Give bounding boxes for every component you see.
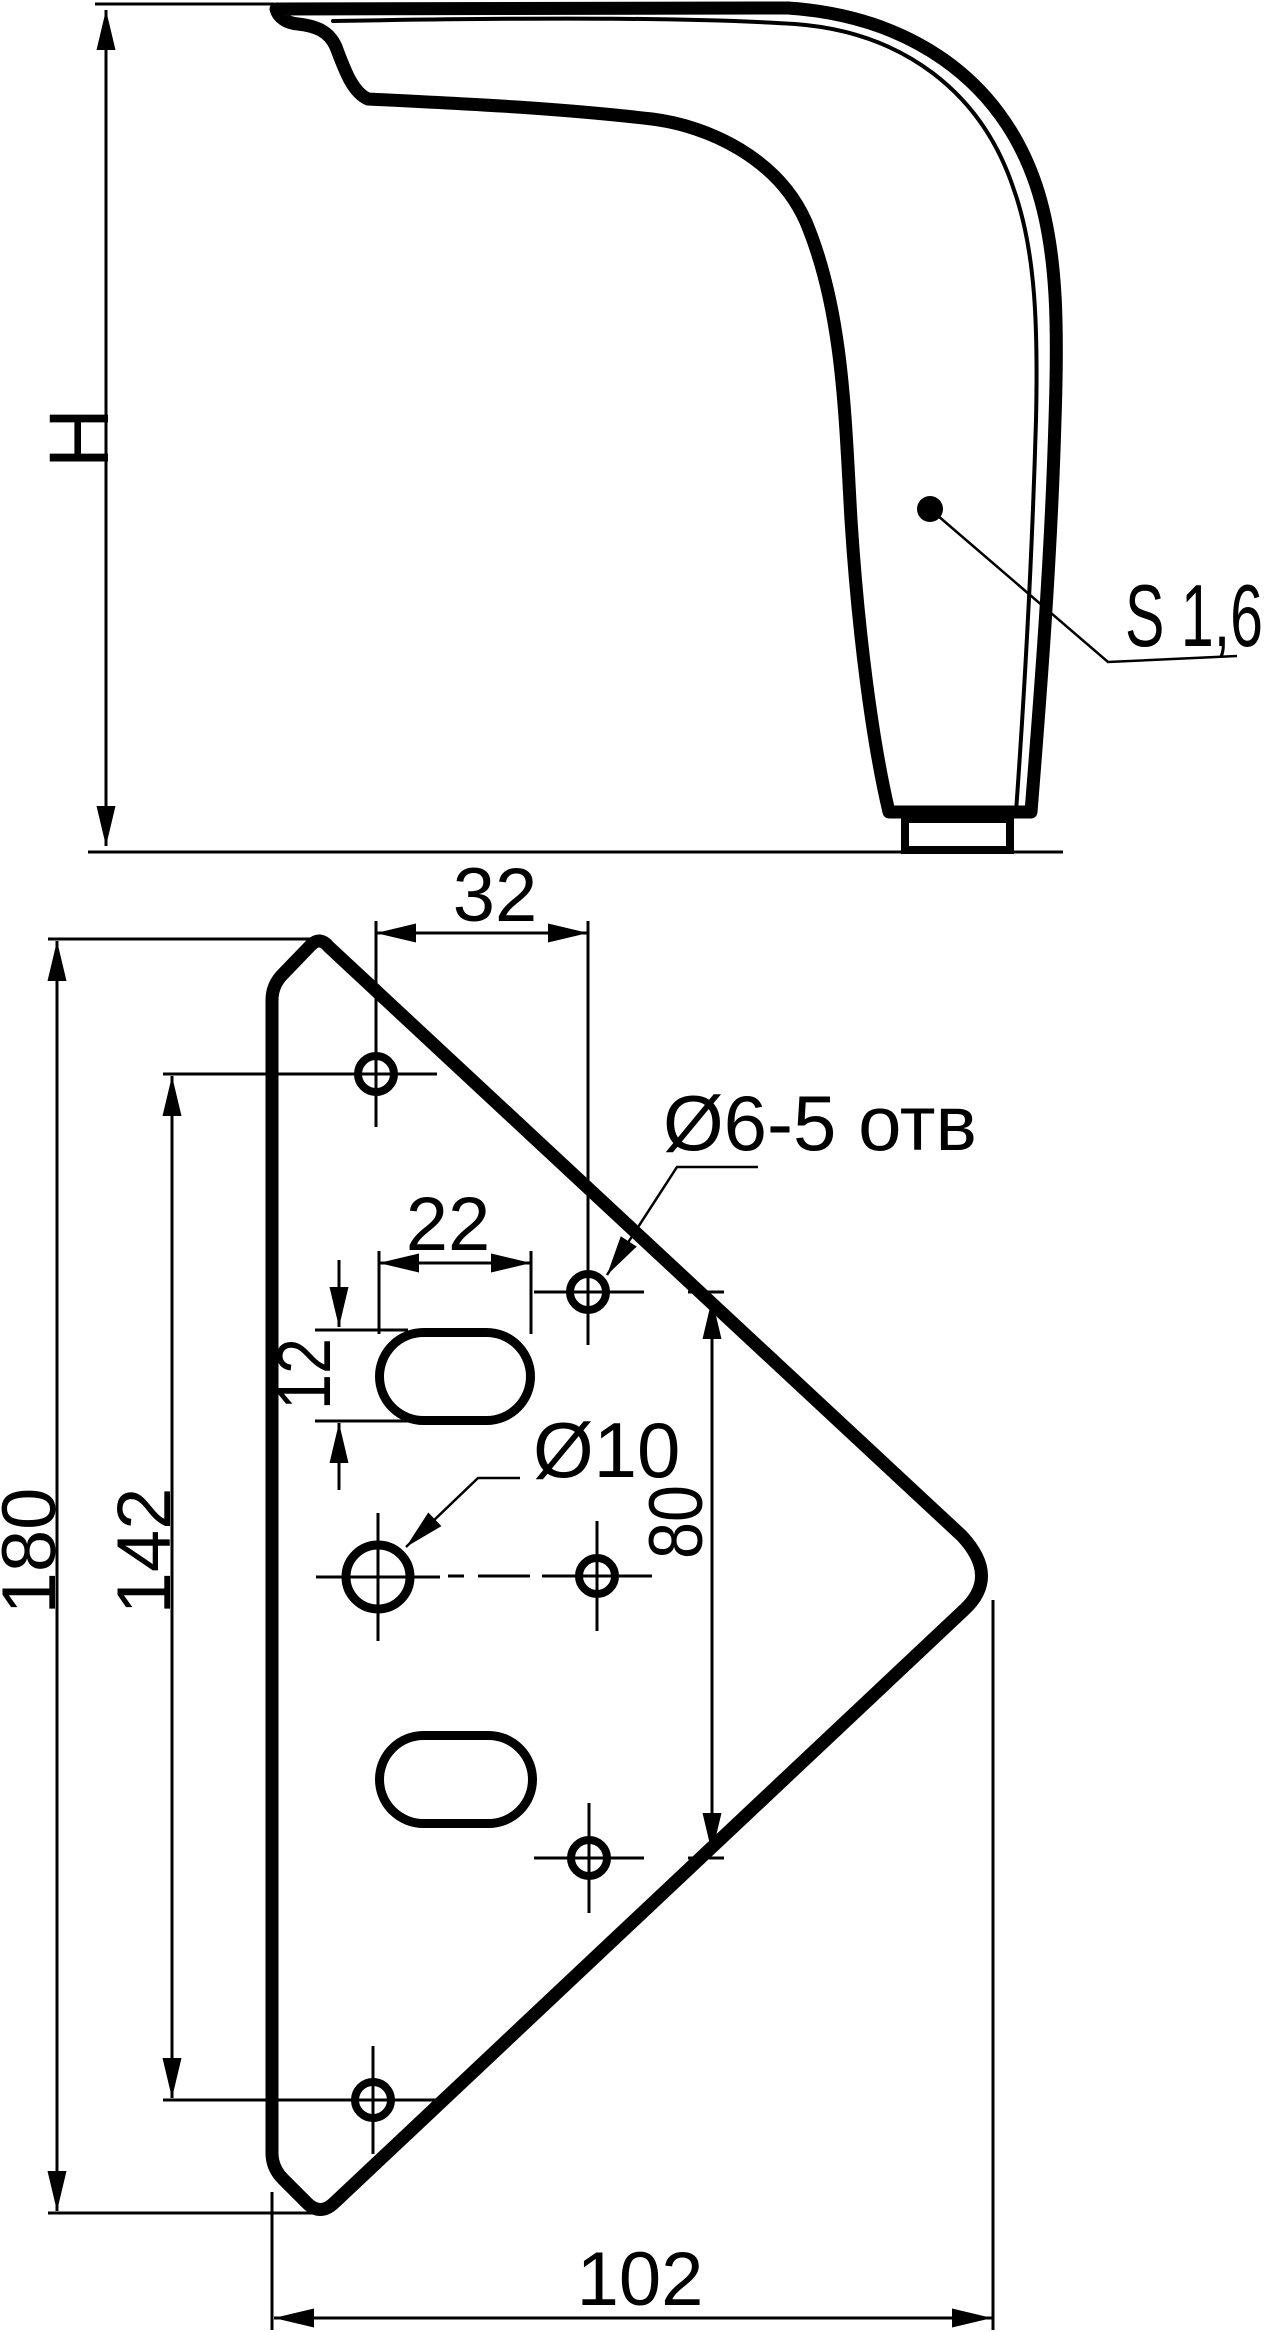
dimension-label-12: 12 (262, 1338, 347, 1410)
slot-lower (380, 1736, 533, 1824)
side-view: H S 1,6 (32, 4, 1263, 852)
dimension-label-22: 22 (406, 1182, 491, 1267)
small-holes-label: Ø6-5 отв (663, 1079, 977, 1167)
height-dimension-label: H (32, 408, 126, 469)
dimension-label-80: 80 (634, 1485, 719, 1559)
leg-outline (276, 8, 1056, 812)
dimension-label-180: 180 (0, 1488, 72, 1615)
drawing-sheet: H S 1,6 (0, 0, 1265, 2332)
dimension-label-142: 142 (102, 1488, 187, 1615)
foot-pad (905, 819, 1010, 850)
dimension-label-102: 102 (577, 2237, 704, 2322)
center-hole-label: Ø10 (533, 1406, 680, 1494)
slot-upper (380, 1333, 531, 1421)
dimension-label-32: 32 (453, 853, 538, 938)
technical-drawing: H S 1,6 (0, 0, 1265, 2332)
plate-view: 32 22 12 80 142 180 102 Ø6-5 отв Ø10 (0, 853, 993, 2330)
thickness-label: S 1,6 (1125, 566, 1263, 665)
